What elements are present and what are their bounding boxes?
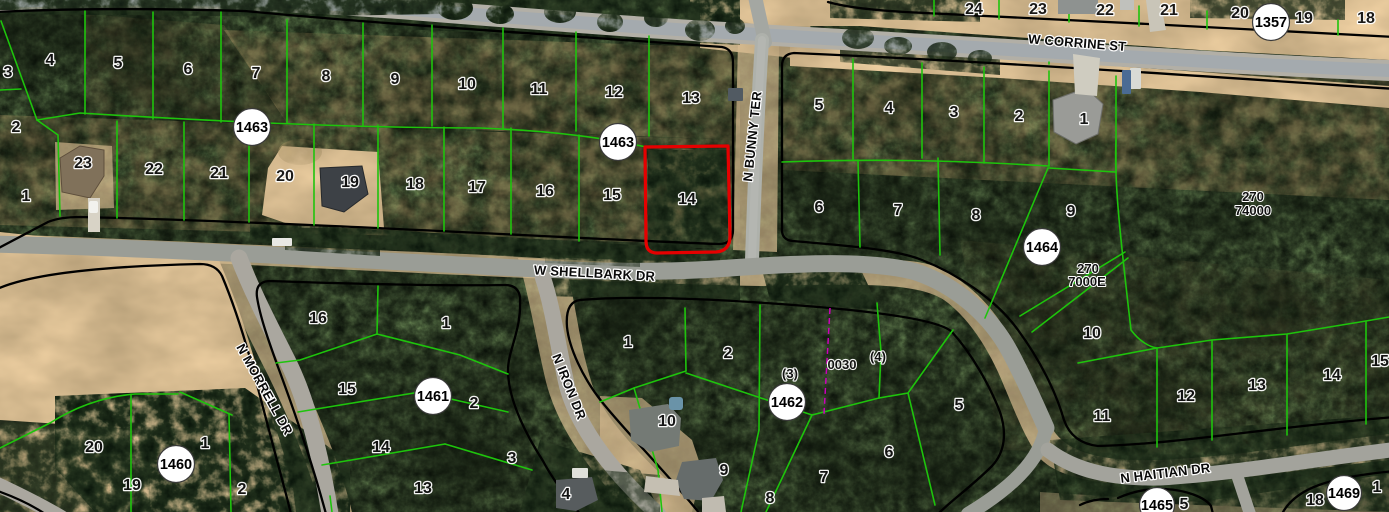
svg-text:5: 5 [1180, 496, 1189, 512]
svg-text:1469: 1469 [1328, 486, 1360, 502]
svg-text:24: 24 [965, 1, 983, 18]
svg-text:(3): (3) [782, 366, 798, 381]
svg-text:2: 2 [1015, 108, 1024, 125]
svg-text:1: 1 [442, 315, 451, 332]
svg-text:6: 6 [885, 444, 894, 461]
svg-text:14: 14 [372, 439, 390, 456]
svg-text:1460: 1460 [160, 457, 192, 473]
svg-text:5: 5 [114, 55, 123, 72]
svg-text:1: 1 [1373, 479, 1382, 496]
svg-text:13: 13 [1248, 377, 1266, 394]
svg-text:12: 12 [605, 84, 623, 101]
svg-text:16: 16 [309, 310, 327, 327]
svg-text:2: 2 [12, 119, 21, 136]
svg-text:15: 15 [1371, 353, 1389, 370]
svg-text:7: 7 [820, 469, 829, 486]
svg-text:14: 14 [678, 191, 696, 208]
svg-text:1463: 1463 [236, 120, 268, 136]
svg-text:23: 23 [74, 155, 92, 172]
svg-text:1357: 1357 [1255, 15, 1287, 31]
svg-text:20: 20 [276, 168, 294, 185]
svg-text:1: 1 [22, 188, 31, 205]
svg-text:19: 19 [123, 477, 141, 494]
svg-text:11: 11 [531, 81, 548, 98]
svg-text:21: 21 [1160, 2, 1178, 19]
svg-text:8: 8 [766, 490, 775, 507]
svg-text:10: 10 [458, 76, 476, 93]
svg-text:7: 7 [894, 202, 903, 219]
svg-text:2: 2 [470, 395, 479, 412]
svg-text:18: 18 [1306, 492, 1324, 509]
svg-text:20: 20 [85, 439, 103, 456]
svg-text:6: 6 [184, 61, 193, 78]
svg-text:1462: 1462 [771, 395, 803, 411]
svg-text:3: 3 [4, 64, 13, 81]
svg-text:(4): (4) [870, 349, 886, 364]
svg-text:1465: 1465 [1141, 498, 1173, 512]
svg-text:20: 20 [1231, 5, 1249, 22]
svg-text:7: 7 [252, 65, 261, 82]
svg-text:270: 270 [1242, 189, 1264, 204]
svg-text:3: 3 [508, 450, 517, 467]
svg-text:4: 4 [885, 100, 894, 117]
svg-text:10: 10 [1083, 325, 1101, 342]
svg-text:17: 17 [468, 179, 486, 196]
svg-text:1461: 1461 [417, 389, 449, 405]
svg-text:74000: 74000 [1235, 203, 1271, 218]
svg-text:18: 18 [1357, 10, 1375, 27]
svg-text:4: 4 [46, 52, 55, 69]
svg-text:14: 14 [1323, 367, 1341, 384]
svg-text:9: 9 [720, 462, 729, 479]
svg-text:21: 21 [210, 165, 228, 182]
svg-text:4: 4 [562, 486, 571, 503]
svg-text:22: 22 [1096, 2, 1114, 19]
svg-text:9: 9 [1067, 203, 1076, 220]
svg-text:1: 1 [624, 334, 633, 351]
svg-text:19: 19 [341, 174, 359, 191]
svg-text:1463: 1463 [602, 135, 634, 151]
svg-text:10: 10 [658, 413, 676, 430]
svg-text:19: 19 [1295, 10, 1313, 27]
svg-text:0030: 0030 [828, 357, 857, 372]
svg-text:3: 3 [950, 104, 959, 121]
svg-text:12: 12 [1177, 388, 1195, 405]
svg-text:1464: 1464 [1026, 240, 1058, 256]
svg-text:1: 1 [1080, 111, 1089, 128]
svg-text:2: 2 [724, 345, 733, 362]
svg-text:9: 9 [391, 71, 400, 88]
svg-text:7000E: 7000E [1068, 274, 1106, 289]
svg-text:2: 2 [238, 481, 247, 498]
svg-text:22: 22 [145, 161, 163, 178]
svg-text:15: 15 [338, 381, 356, 398]
svg-text:8: 8 [972, 207, 981, 224]
svg-text:8: 8 [322, 68, 331, 85]
svg-text:16: 16 [536, 183, 554, 200]
svg-text:5: 5 [815, 97, 824, 114]
svg-text:13: 13 [414, 480, 432, 497]
svg-text:15: 15 [603, 187, 621, 204]
svg-text:13: 13 [682, 90, 700, 107]
svg-text:5: 5 [955, 397, 964, 414]
svg-text:18: 18 [406, 176, 424, 193]
svg-text:6: 6 [815, 199, 824, 216]
svg-text:11: 11 [1094, 408, 1111, 425]
svg-text:23: 23 [1029, 1, 1047, 18]
svg-text:1: 1 [201, 435, 210, 452]
